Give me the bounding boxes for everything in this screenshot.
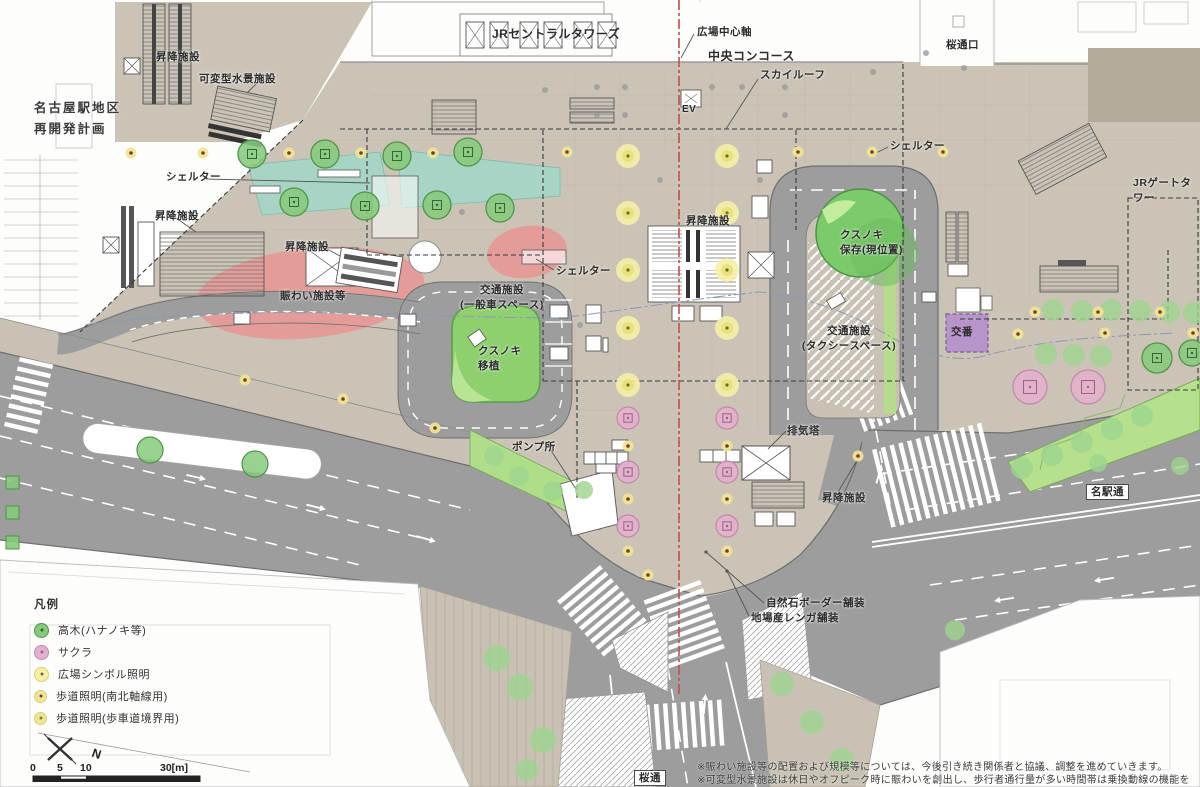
note-line-2: ※可変型水景施設は休日やオフピーク時に賑わいを創出し、歩行者通行量が多い時間帯は…	[697, 771, 1200, 787]
legend-item-tree: 高木(ハナノキ等)	[58, 622, 146, 638]
label-traffic-taxi: 交通施設 (タクシースペース)	[802, 324, 896, 354]
legend-tree-icon	[34, 623, 49, 638]
site-plan-canvas	[0, 0, 1200, 787]
label-elevator-west: 昇降施設	[155, 209, 199, 224]
label-jr-central-towers: JRセントラルタワーズ	[492, 26, 620, 43]
label-shelter-east: シェルター	[890, 139, 945, 154]
label-paving-stone: 自然石ボーダー舗装	[766, 596, 865, 611]
label-exhaust-tower: 排気塔	[787, 424, 820, 439]
legend-item-symbol-light: 広場シンボル照明	[58, 666, 150, 682]
label-meieki-dori: 名駅通	[1086, 484, 1129, 500]
label-ev: EV	[682, 103, 696, 118]
label-pump-station: ポンプ所	[512, 440, 556, 455]
legend-symbol-light-icon	[34, 667, 49, 682]
label-plaza-center-axis: 広場中心軸	[697, 25, 752, 40]
legend-title: 凡例	[34, 596, 179, 612]
label-koban: 交番	[951, 325, 973, 340]
legend-item-path-light-ns: 歩道照明(南北軸線用)	[56, 688, 168, 704]
label-jr-gate-tower: JRゲートタワー	[1133, 176, 1200, 206]
label-nigiwai: 賑わい施設等	[280, 289, 346, 304]
sakura-exit-walkway	[920, 0, 994, 66]
label-elevator-center: 昇降施設	[686, 214, 730, 229]
top-right-structure	[1088, 48, 1200, 122]
label-sky-roof: スカイルーフ	[760, 68, 825, 83]
label-elevator-southeast: 昇降施設	[822, 491, 866, 506]
scale-tick-0: 0	[30, 762, 36, 774]
label-paving-brick: 地場産レンガ舗装	[751, 611, 839, 626]
label-kusunoki-transplant: クスノキ 移植	[478, 344, 522, 374]
legend: 凡例 高木(ハナノキ等) サクラ 広場シンボル照明 歩道照明(南北軸線用) 歩道…	[34, 596, 179, 729]
legend-path-light-ns-icon	[34, 690, 47, 703]
legend-item-sakura: サクラ	[58, 644, 93, 660]
label-shelter-west: シェルター	[166, 170, 221, 185]
legend-item-path-light-edge: 歩道照明(歩車道境界用)	[56, 710, 179, 726]
label-central-concourse: 中央コンコース	[708, 48, 795, 65]
label-water-feature: 可変型水景施設	[199, 72, 276, 87]
legend-sakura-icon	[34, 645, 49, 660]
label-sakura-dori-exit: 桜通口	[946, 38, 979, 53]
label-shelter-center: シェルター	[556, 264, 611, 279]
label-sakura-dori: 桜通	[634, 770, 666, 786]
label-kusunoki-preserve: クスノキ 保存(現位置)	[840, 228, 903, 258]
legend-path-light-edge-icon	[34, 712, 47, 725]
scale-tick-10: 10	[80, 762, 92, 774]
left-parking-strip	[4, 155, 78, 320]
site-plan-page: 名古屋駅地区 再開発計画 JRセントラルタワーズ 広場中心軸 中央コンコース 桜…	[0, 0, 1200, 787]
scale-tick-30m: 30[m]	[160, 762, 188, 774]
label-elevator-nigiwai: 昇降施設	[285, 240, 329, 255]
site-title: 名古屋駅地区 再開発計画	[34, 98, 121, 141]
label-traffic-general: 交通施設 (一般車スペース)	[460, 283, 544, 313]
label-elevator-northwest: 昇降施設	[156, 50, 200, 65]
scale-bar	[33, 776, 200, 782]
scale-tick-5: 5	[57, 762, 63, 774]
